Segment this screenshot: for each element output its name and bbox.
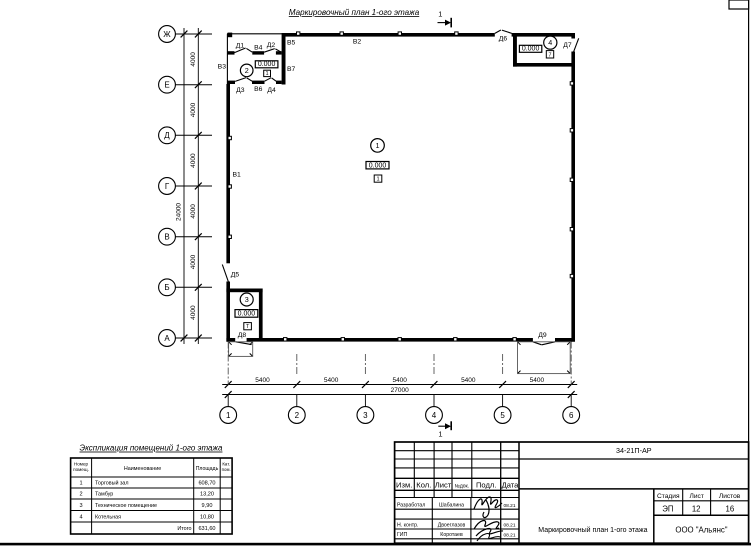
svg-text:1: 1 <box>79 481 82 487</box>
svg-text:Наименование: Наименование <box>124 466 161 472</box>
svg-text:5400: 5400 <box>392 377 407 384</box>
svg-text:Лист: Лист <box>690 493 704 500</box>
svg-text:В4: В4 <box>254 45 263 52</box>
svg-text:2: 2 <box>79 492 82 498</box>
svg-text:4000: 4000 <box>190 254 197 269</box>
svg-text:3: 3 <box>79 503 82 509</box>
svg-text:помещ.: помещ. <box>73 467 89 472</box>
svg-text:Итого: Итого <box>177 526 191 532</box>
svg-text:0.000: 0.000 <box>238 311 256 318</box>
svg-text:Б: Б <box>164 283 169 292</box>
svg-text:5400: 5400 <box>324 377 339 384</box>
svg-text:Тамбур: Тамбур <box>95 492 113 498</box>
svg-text:В6: В6 <box>254 86 263 93</box>
svg-text:В1: В1 <box>233 172 242 179</box>
svg-text:Листов: Листов <box>719 493 741 500</box>
svg-text:4000: 4000 <box>190 52 197 67</box>
svg-text:ЭП: ЭП <box>662 504 673 513</box>
svg-text:Лист: Лист <box>435 480 452 489</box>
svg-text:27000: 27000 <box>391 387 409 394</box>
svg-text:08.21: 08.21 <box>503 523 515 529</box>
svg-text:Г: Г <box>165 182 170 191</box>
svg-text:608,70: 608,70 <box>198 481 215 487</box>
svg-text:16: 16 <box>726 504 735 513</box>
svg-text:0.000: 0.000 <box>258 61 276 68</box>
svg-text:4: 4 <box>432 411 437 420</box>
svg-text:1: 1 <box>266 71 269 77</box>
svg-text:В7: В7 <box>287 66 296 73</box>
svg-text:12: 12 <box>692 504 701 513</box>
svg-text:Д8: Д8 <box>238 332 247 339</box>
svg-text:7: 7 <box>549 52 552 58</box>
svg-text:Подл.: Подл. <box>476 480 497 489</box>
svg-text:В2: В2 <box>353 39 362 46</box>
svg-text:2: 2 <box>245 66 249 75</box>
svg-text:Д6: Д6 <box>499 35 508 42</box>
svg-text:Д9: Д9 <box>538 332 547 339</box>
svg-text:Д4: Д4 <box>267 87 276 94</box>
svg-text:В: В <box>164 233 169 242</box>
svg-text:Коротаев: Коротаев <box>440 532 463 538</box>
svg-text:Дата: Дата <box>502 480 520 489</box>
svg-text:Д3: Д3 <box>236 87 245 94</box>
svg-text:Е: Е <box>164 81 169 90</box>
svg-text:Ж: Ж <box>163 30 171 39</box>
svg-text:Д5: Д5 <box>231 272 240 279</box>
svg-text:Маркировочный план 1-ого этажа: Маркировочный план 1-ого этажа <box>289 8 420 17</box>
svg-text:24000: 24000 <box>176 203 183 221</box>
svg-text:Двоеглазов: Двоеглазов <box>438 522 466 528</box>
svg-text:5400: 5400 <box>255 377 270 384</box>
svg-text:4000: 4000 <box>190 153 197 168</box>
svg-text:1: 1 <box>376 177 379 183</box>
svg-text:Д7: Д7 <box>563 42 572 49</box>
svg-text:Маркировочный план 1-ого этажа: Маркировочный план 1-ого этажа <box>538 526 647 534</box>
svg-text:Стадия: Стадия <box>657 493 680 500</box>
svg-text:2: 2 <box>295 411 300 420</box>
svg-text:В3: В3 <box>218 64 227 71</box>
svg-text:Кол.: Кол. <box>416 480 431 489</box>
svg-text:Изм.: Изм. <box>396 480 412 489</box>
svg-text:3: 3 <box>245 295 249 304</box>
svg-text:13,20: 13,20 <box>200 492 214 498</box>
svg-text:Площадь: Площадь <box>196 466 219 472</box>
svg-text:Д: Д <box>164 131 170 140</box>
svg-text:пом.: пом. <box>222 467 231 472</box>
svg-text:0.000: 0.000 <box>369 162 387 169</box>
svg-text:08.21: 08.21 <box>503 532 515 538</box>
svg-text:3: 3 <box>363 411 368 420</box>
svg-text:6: 6 <box>569 411 574 420</box>
svg-text:1: 1 <box>438 10 442 19</box>
svg-text:9,90: 9,90 <box>202 503 213 509</box>
svg-text:1: 1 <box>226 411 231 420</box>
svg-text:4000: 4000 <box>190 204 197 219</box>
svg-text:5400: 5400 <box>461 377 476 384</box>
svg-text:Торговый зал: Торговый зал <box>95 480 129 487</box>
svg-text:ГИП: ГИП <box>397 532 408 538</box>
svg-text:08.21: 08.21 <box>503 503 515 509</box>
svg-text:Техническое помещение: Техническое помещение <box>95 503 157 509</box>
svg-text:Котельная: Котельная <box>95 514 121 520</box>
svg-text:5400: 5400 <box>530 377 545 384</box>
svg-text:10,80: 10,80 <box>200 514 214 520</box>
svg-text:Д2: Д2 <box>267 42 276 49</box>
svg-text:631,60: 631,60 <box>198 526 215 532</box>
svg-text:Шабалина: Шабалина <box>439 502 464 508</box>
svg-text:А: А <box>164 334 170 343</box>
svg-text:Номер: Номер <box>74 462 89 467</box>
svg-text:В5: В5 <box>287 39 296 46</box>
svg-text:Разработал: Разработал <box>397 502 425 508</box>
svg-text:0.000: 0.000 <box>522 46 540 53</box>
svg-text:Экспликация помещений 1-ого эт: Экспликация помещений 1-ого этажа <box>80 444 223 453</box>
svg-text:№док.: №док. <box>454 484 469 490</box>
svg-text:Кат.: Кат. <box>222 462 230 467</box>
svg-text:1: 1 <box>438 430 442 439</box>
svg-text:Д1: Д1 <box>236 42 245 49</box>
svg-text:ООО "Альянс": ООО "Альянс" <box>675 526 727 535</box>
svg-text:4000: 4000 <box>190 305 197 320</box>
svg-text:5: 5 <box>500 411 505 420</box>
svg-text:4: 4 <box>548 38 552 47</box>
svg-text:34-21П-АР: 34-21П-АР <box>616 446 652 455</box>
svg-text:Н. контр.: Н. контр. <box>397 522 418 528</box>
svg-text:4000: 4000 <box>190 102 197 117</box>
svg-text:1: 1 <box>376 141 380 150</box>
svg-text:4: 4 <box>79 514 82 520</box>
